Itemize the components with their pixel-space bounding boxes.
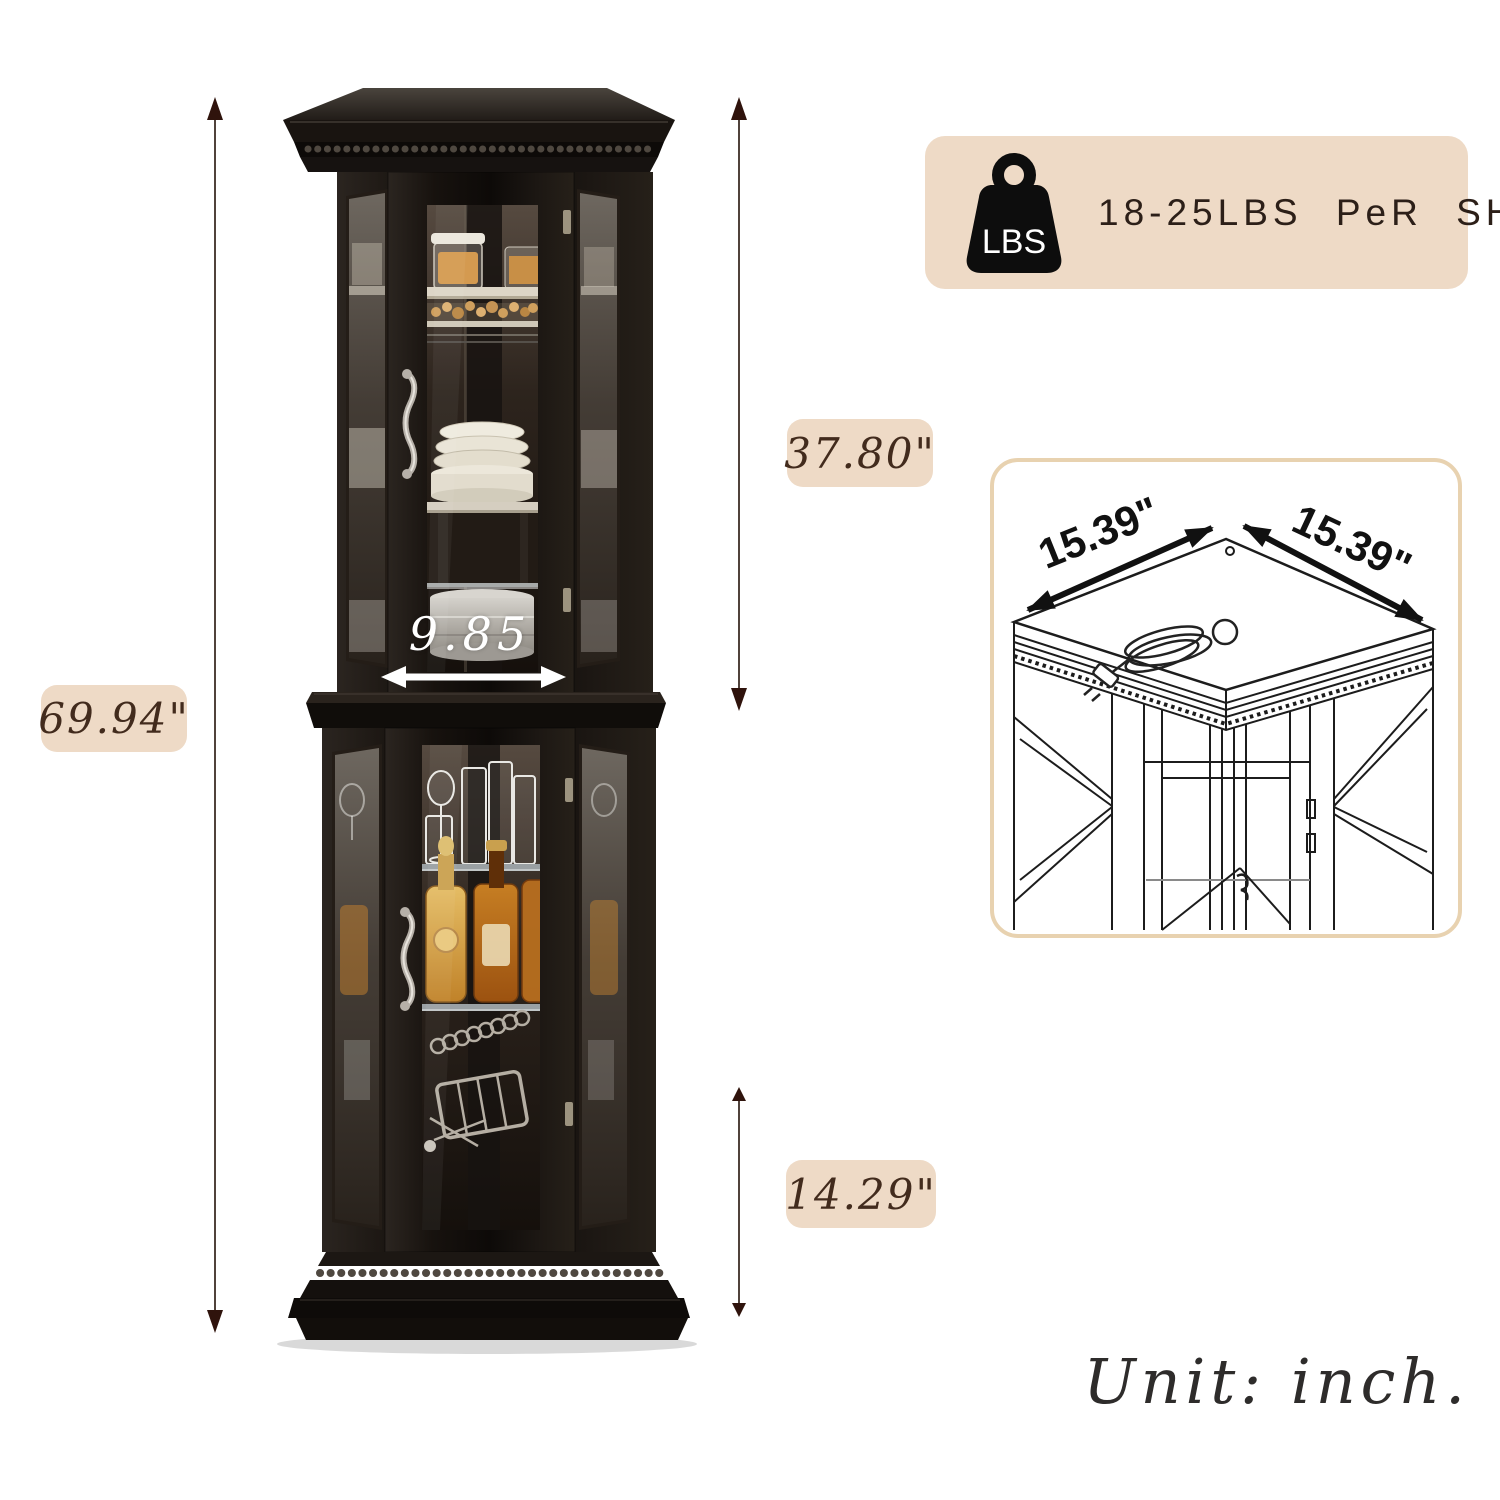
upper-height-value: 37.80": [784, 429, 936, 478]
upper-hinge-icon: [563, 210, 571, 234]
middle-divider: [306, 692, 666, 728]
lower-glass-contents: [422, 745, 558, 1230]
top-view-panel: 15.39" 15.39": [990, 458, 1462, 938]
upper-glass-contents: [427, 205, 545, 672]
lower-hinge-icon: [565, 778, 573, 802]
weight-capacity-badge: LBS 18-25LBS PeR SHeLF: [925, 136, 1468, 289]
top-view-drawing: 15.39" 15.39": [994, 462, 1458, 934]
depth-left-label: 15.39": [1032, 487, 1166, 577]
cabinet-crown: [283, 88, 675, 172]
weight-icon-label: LBS: [982, 223, 1046, 261]
total-height-arrow: [207, 97, 223, 1333]
cabinet: [277, 88, 697, 1354]
upper-hinge-icon: [563, 588, 571, 612]
cabinet-lower-section: [322, 728, 656, 1252]
unit-note: Unit: inch.: [1020, 1345, 1470, 1418]
total-height-badge: 69.94": [41, 685, 187, 752]
lower-height-value: 14.29": [785, 1170, 937, 1219]
cabinet-base: [288, 1252, 690, 1340]
lower-height-arrow: [732, 1087, 746, 1317]
upper-height-badge: 37.80": [787, 419, 933, 487]
lower-height-badge: 14.29": [786, 1160, 936, 1228]
door-width-label: 9.85: [409, 607, 531, 661]
weight-capacity-text: 18-25LBS PeR SHeLF: [1098, 192, 1500, 234]
weight-lbs-icon: LBS: [958, 151, 1070, 275]
depth-right-label: 15.39": [1286, 495, 1419, 590]
product-dimension-diagram: 69.94" 37.80" 14.29" 9.85 LBS 18-25LBS P…: [0, 0, 1500, 1500]
lower-hinge-icon: [565, 1102, 573, 1126]
total-height-value: 69.94": [38, 694, 190, 743]
upper-height-arrow: [731, 97, 747, 711]
